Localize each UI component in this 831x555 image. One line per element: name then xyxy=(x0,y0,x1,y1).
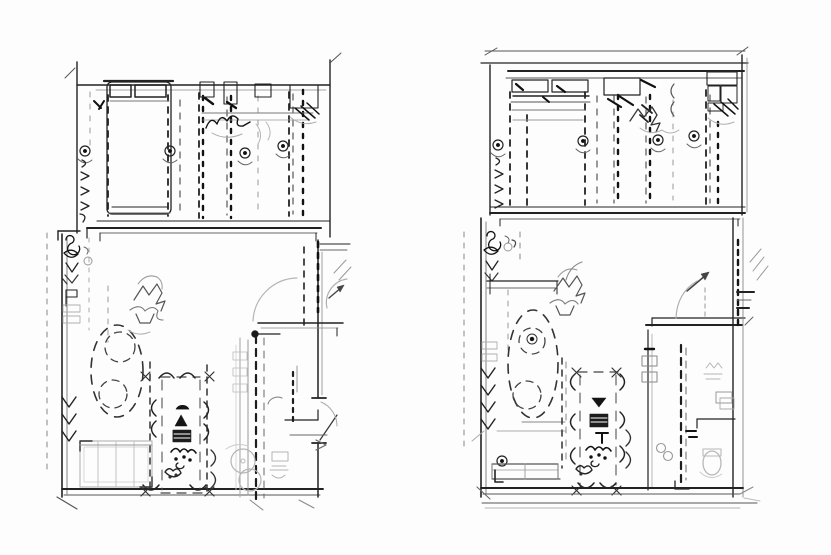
wall-glyph xyxy=(80,214,85,222)
corner-tick xyxy=(250,500,263,510)
wall-lamp-icon xyxy=(651,148,665,152)
wall-lamp-icon xyxy=(238,161,252,165)
plant-sketch xyxy=(130,307,163,320)
chair-sketch xyxy=(211,450,216,466)
sink-basin xyxy=(664,452,673,461)
table-item-dark xyxy=(188,458,191,461)
radiator-mark xyxy=(481,385,495,395)
sketch-accent xyxy=(516,84,523,90)
chair-sketch xyxy=(571,448,576,464)
door-swing-arc xyxy=(321,402,337,426)
door-swing-arc xyxy=(326,279,347,308)
appliance-glyph xyxy=(272,475,285,478)
table-item-dark xyxy=(592,398,606,407)
sketch-scribble xyxy=(66,263,78,272)
chair-sketch xyxy=(152,421,157,437)
sketch-scribble xyxy=(671,84,674,98)
chair-sketch xyxy=(571,414,576,430)
appliance-glyph xyxy=(716,392,732,403)
chair-sketch xyxy=(620,446,625,462)
bed-pillow xyxy=(110,85,131,97)
corner-tick xyxy=(65,68,75,78)
door-leaf xyxy=(320,415,337,440)
sketch-scribble xyxy=(226,445,248,449)
wall-glyph xyxy=(81,187,89,195)
table-item-dark xyxy=(596,433,608,443)
hatch-mark xyxy=(334,260,346,273)
sketch-accent xyxy=(641,80,655,87)
radiator-mark xyxy=(481,368,495,378)
radiator-mark xyxy=(482,354,497,361)
rug-outline xyxy=(105,332,135,362)
table-item-dark xyxy=(586,447,611,452)
corner-tick xyxy=(57,497,77,509)
fixture-box xyxy=(66,290,77,297)
plant-sketch xyxy=(554,276,585,303)
wall-lamp-icon xyxy=(581,139,585,143)
left-floor-plan xyxy=(47,53,351,510)
wall-lamp-icon xyxy=(692,134,696,138)
radiator-mark xyxy=(482,342,497,349)
wall-lamp-icon xyxy=(281,144,285,148)
sketch-scribble xyxy=(486,261,498,270)
plant-sketch xyxy=(206,116,250,128)
chair-sketch xyxy=(620,412,625,428)
plant-pot xyxy=(136,314,154,323)
toilet-sketch xyxy=(703,451,721,475)
chair-sketch xyxy=(626,430,631,446)
table-item-dark xyxy=(173,430,191,442)
sketch-scribble xyxy=(485,273,498,281)
table-item-dark xyxy=(590,414,608,427)
right-floor-plan xyxy=(464,47,768,508)
radiator-mark xyxy=(481,402,495,412)
table-item-dark xyxy=(176,463,184,469)
target-circle xyxy=(500,459,504,463)
radiator-mark xyxy=(62,431,76,441)
sketch-accent xyxy=(205,98,213,104)
floorplan-canvas xyxy=(0,0,831,555)
shelf-line xyxy=(642,356,657,366)
chair-sketch xyxy=(204,402,209,418)
closet-box xyxy=(604,78,640,95)
wall-glyph xyxy=(81,202,89,210)
sketch-scribble xyxy=(62,275,78,284)
sink-basin xyxy=(657,444,666,453)
flower-sketch xyxy=(165,469,181,477)
wall-lamp-icon xyxy=(496,143,500,147)
corner-tick xyxy=(299,500,314,508)
hatch-mark xyxy=(339,267,351,280)
radiator-mark xyxy=(63,316,80,323)
hatch-mark xyxy=(753,257,764,271)
sofa-outline xyxy=(80,441,92,451)
chair-sketch xyxy=(205,372,214,381)
sketch-accent xyxy=(252,331,259,338)
door-swing-arc xyxy=(253,278,297,321)
door-swing-arc xyxy=(676,281,697,318)
radiator-mark xyxy=(62,397,76,407)
target-circle xyxy=(530,337,534,341)
sketch-scribble xyxy=(671,102,674,116)
chair-sketch xyxy=(204,424,209,440)
wall-glyph xyxy=(495,185,503,193)
table-item-dark xyxy=(589,455,592,458)
sketch-accent xyxy=(557,86,565,92)
table-item-dark xyxy=(182,455,185,458)
rug-outline xyxy=(99,380,127,408)
wall-lamp-icon xyxy=(687,144,701,148)
chair-sketch xyxy=(626,452,631,468)
corner-tick xyxy=(472,431,484,441)
sketch-scribble xyxy=(66,236,80,255)
sketch-scribble xyxy=(84,247,88,254)
wall-lamp-icon xyxy=(168,149,172,153)
wall-glyph xyxy=(81,172,89,180)
wall-glyph xyxy=(82,160,86,167)
sketch-scribble xyxy=(505,236,509,243)
sketch-scribble xyxy=(708,118,734,124)
chair-sketch xyxy=(211,472,216,488)
wall-glyph xyxy=(495,170,503,178)
table-item-dark xyxy=(175,415,187,426)
rug-outline xyxy=(508,310,558,418)
wall-lamp-icon xyxy=(83,149,87,153)
wall-lamp-icon xyxy=(576,149,590,153)
shelf-line xyxy=(642,372,657,382)
bed-pillow xyxy=(135,85,166,97)
corner-tick xyxy=(331,53,341,62)
radiator-mark xyxy=(62,414,76,424)
sink-basin xyxy=(239,469,261,491)
plant-pot xyxy=(556,306,574,315)
table-item-dark xyxy=(174,457,177,460)
table-item-dark xyxy=(603,456,606,459)
flower-sketch xyxy=(576,466,592,474)
flower-sketch xyxy=(169,476,172,479)
plant-sketch xyxy=(550,300,578,304)
wall-glyph xyxy=(496,158,500,165)
wall-lamp-icon xyxy=(243,151,247,155)
corner-tick xyxy=(745,317,753,325)
sink-basin xyxy=(241,459,245,463)
flower-sketch xyxy=(175,474,178,477)
table-item-dark xyxy=(171,449,196,454)
radiator-mark xyxy=(481,419,495,429)
wall-glyph xyxy=(512,240,516,247)
appliance-glyph xyxy=(272,452,288,461)
hatch-mark xyxy=(757,266,768,280)
table-item-dark xyxy=(591,461,599,467)
sketch-scribble xyxy=(84,257,92,265)
rug-outline xyxy=(91,325,143,417)
sideboard-outline xyxy=(495,470,503,482)
wall-lamp-icon xyxy=(163,159,177,163)
hanger-mark xyxy=(295,108,309,120)
wall-lamp-icon xyxy=(276,154,290,158)
closet-box xyxy=(255,84,271,97)
chair-sketch xyxy=(152,400,157,416)
wall-lamp-icon xyxy=(656,138,660,142)
bed-outline xyxy=(107,82,171,214)
hatch-mark xyxy=(750,249,761,262)
table-item-dark xyxy=(597,453,600,456)
ground-line xyxy=(744,498,760,501)
plant-sketch xyxy=(566,262,582,280)
sketch-page xyxy=(0,0,831,555)
appliance-glyph xyxy=(706,363,722,368)
flower-sketch xyxy=(580,473,583,476)
table-item-dark xyxy=(176,405,189,409)
faucet-arc xyxy=(268,397,282,404)
sketch-accent xyxy=(543,97,549,102)
sketch-accent xyxy=(94,101,104,109)
rug-outline xyxy=(513,381,541,409)
sketch-scribble xyxy=(504,243,512,251)
wall-lamp-icon xyxy=(491,153,505,157)
sketch-accent xyxy=(619,96,633,105)
